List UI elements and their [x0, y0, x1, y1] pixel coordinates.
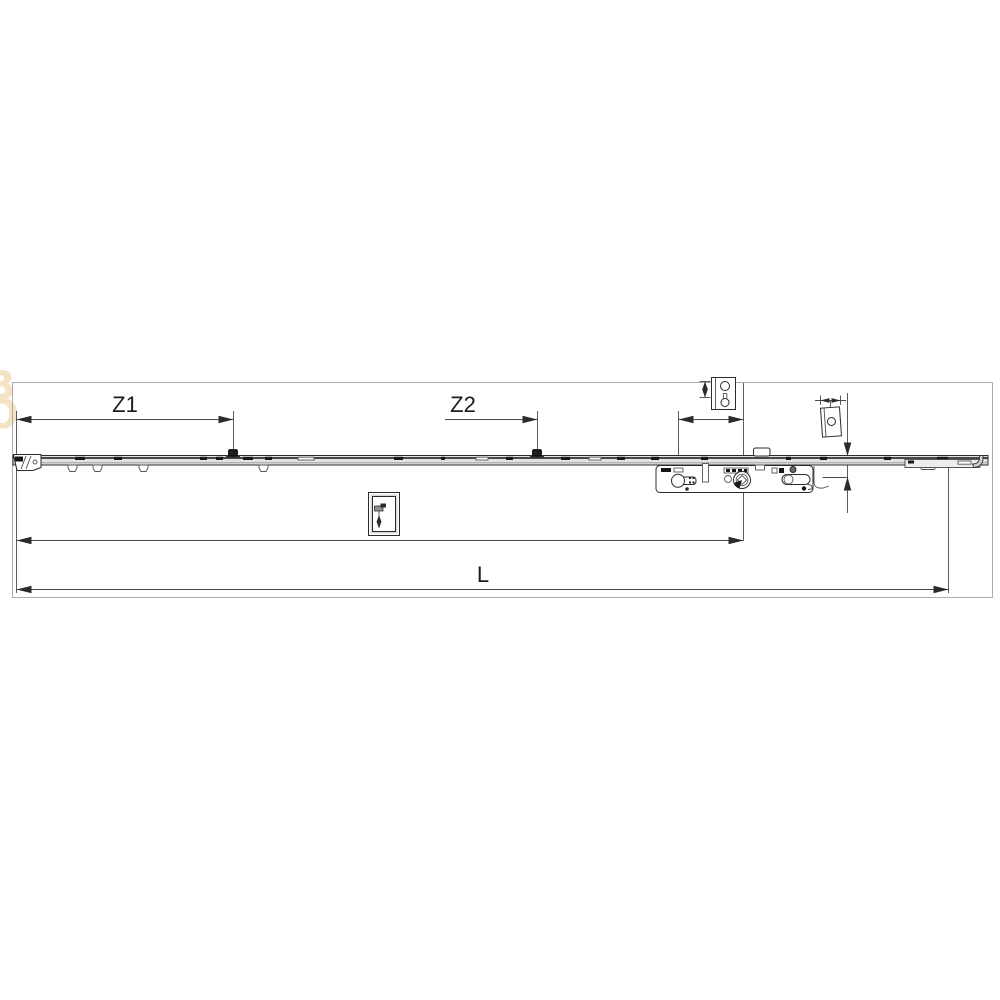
strike-plate-height-arrow [700, 382, 711, 398]
gearbox-slot [703, 464, 709, 483]
label-z1: Z1 [112, 392, 138, 417]
roller-cam-z2 [530, 450, 544, 459]
strike-plate-icon-right [815, 396, 846, 438]
label-length: L [477, 562, 489, 587]
dimension-length: L [17, 562, 949, 593]
dimension-handle-position [17, 537, 744, 545]
diagram-page: { "colors": { "line": "#2b2b2b", "mid": … [0, 0, 1000, 1000]
lock-dimension-diagram: Z1 Z2 L [0, 0, 1000, 1000]
handle-follower [734, 472, 751, 489]
gearbox [656, 464, 829, 493]
window-handle-symbol [369, 493, 400, 536]
strike-plate-width-arrow [815, 396, 846, 409]
label-z2: Z2 [450, 392, 476, 417]
gearbox-screw-hole [725, 476, 732, 483]
dimension-z2: Z2 [445, 392, 538, 423]
rail-left-end-cap [14, 455, 42, 471]
gearbox-screw [790, 467, 796, 473]
strike-plate-icon-top [700, 378, 736, 410]
dimension-z1: Z1 [17, 392, 234, 423]
dimension-gearbox-offset [679, 416, 744, 424]
lock-rail [13, 448, 988, 472]
latch-tab [754, 448, 771, 456]
roller-cam-z1 [226, 450, 240, 459]
